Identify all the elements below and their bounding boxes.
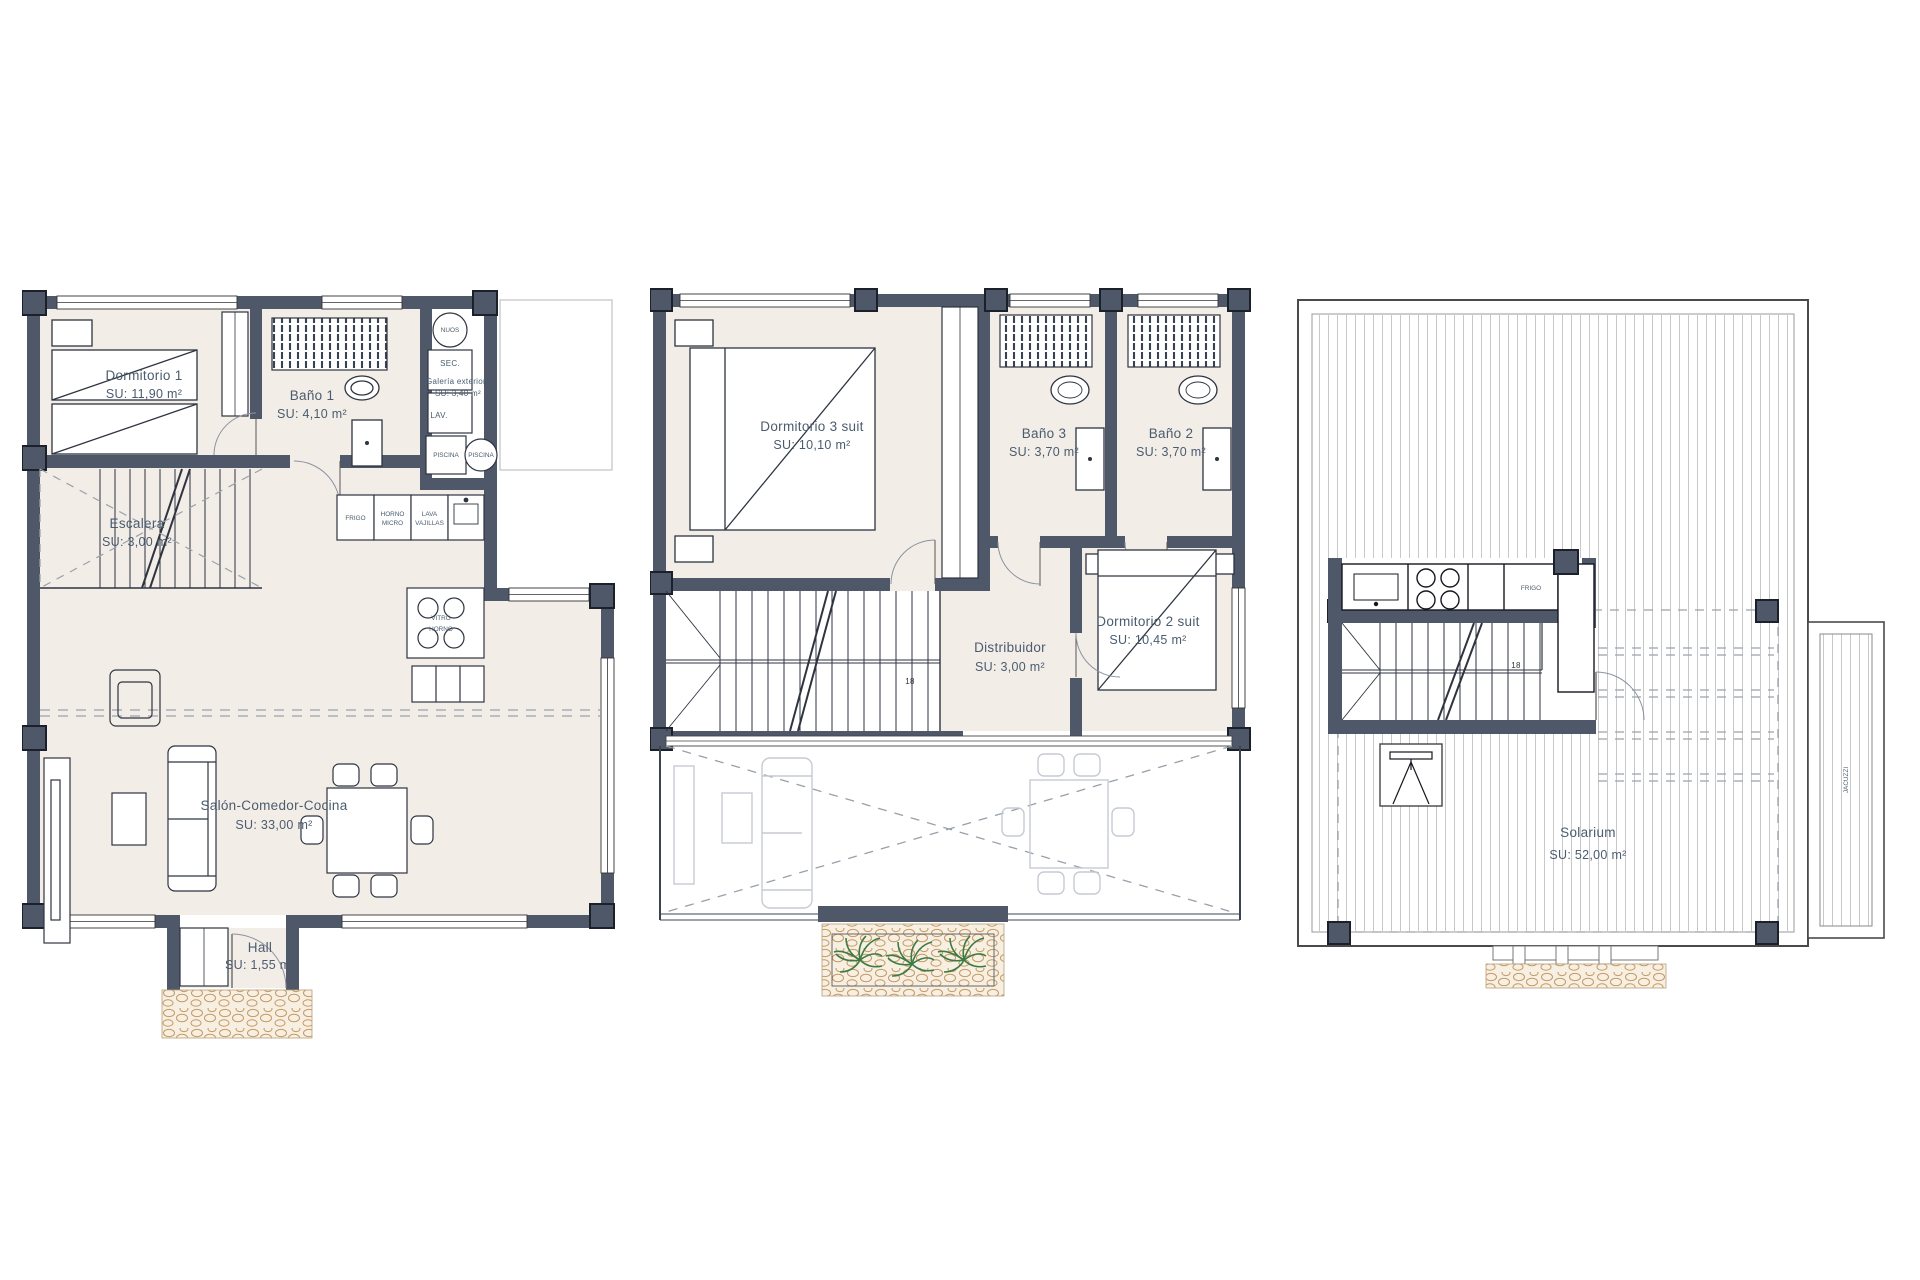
galeria-area: SU: 3,40 m² bbox=[435, 389, 481, 398]
bano1-area: SU: 4,10 m² bbox=[277, 407, 347, 421]
distribuidor-name: Distribuidor bbox=[974, 640, 1046, 655]
floorplan-sheet: NUOS SEC. LAV. PISCINA PISCINA Galería e… bbox=[0, 0, 1920, 1280]
vajillas-label: VAJILLAS bbox=[415, 520, 444, 527]
vitro-horno-label: HORNO bbox=[429, 626, 453, 633]
bano3-area: SU: 3,70 m² bbox=[1009, 445, 1079, 459]
hall-closet bbox=[180, 928, 228, 986]
terrace-void-dashed bbox=[666, 746, 1232, 912]
dormitorio1-name: Dormitorio 1 bbox=[105, 368, 182, 383]
bano2-area: SU: 3,70 m² bbox=[1136, 445, 1206, 459]
garden-bed bbox=[822, 924, 1004, 996]
sec-label: SEC. bbox=[440, 359, 460, 368]
porch-paving bbox=[162, 990, 312, 1038]
coffee-table bbox=[112, 793, 146, 845]
solarium-name: Solarium bbox=[1560, 825, 1616, 840]
lav-label: LAV. bbox=[430, 411, 447, 420]
dormitorio3-name: Dormitorio 3 suit bbox=[760, 419, 863, 434]
bano3-name: Baño 3 bbox=[1022, 426, 1067, 441]
salon-name: Salón-Comedor-Cocina bbox=[200, 798, 347, 813]
sofa bbox=[168, 746, 216, 891]
outdoor-shower bbox=[1380, 744, 1442, 806]
dormitorio2-name: Dormitorio 2 suit bbox=[1096, 614, 1199, 629]
frigo-label: FRIGO bbox=[345, 515, 365, 522]
salon-area: SU: 33,00 m² bbox=[235, 818, 312, 832]
terrace-glazing bbox=[666, 736, 1232, 746]
plan-ground-floor: NUOS SEC. LAV. PISCINA PISCINA Galería e… bbox=[22, 288, 622, 1068]
micro-label: MICRO bbox=[382, 520, 403, 527]
plan-solarium: JACUZZI FRIGO 18 bbox=[1288, 292, 1888, 992]
bath1-towel-rack bbox=[272, 318, 387, 370]
rooftop-cupboard bbox=[1554, 550, 1594, 692]
stair-steps-count: 18 bbox=[905, 677, 915, 686]
bath1-toilet bbox=[345, 376, 379, 400]
plan-first-floor: Dormitorio 3 suit SU: 10,10 m² Baño 3 SU… bbox=[650, 288, 1255, 1018]
hall-name: Hall bbox=[248, 940, 272, 955]
kitchen-island-hob bbox=[407, 588, 484, 658]
bedroom1-wardrobe bbox=[222, 312, 248, 416]
entry-canopy bbox=[1486, 946, 1666, 988]
vitro-label: VITRO bbox=[431, 615, 451, 622]
bath1-shower bbox=[352, 420, 382, 466]
horno-label: HORNO bbox=[381, 511, 405, 518]
exterior-terrace-outline bbox=[500, 300, 612, 470]
kitchen-island-2 bbox=[412, 666, 484, 702]
solarium-area: SU: 52,00 m² bbox=[1549, 848, 1626, 862]
dormitorio1-area: SU: 11,90 m² bbox=[106, 387, 182, 401]
stair-steps-count: 18 bbox=[1511, 661, 1521, 670]
ghost-furniture bbox=[674, 754, 1134, 908]
piscina-rect-label: PISCINA bbox=[433, 452, 459, 459]
dormitorio3-area: SU: 10,10 m² bbox=[773, 438, 850, 452]
galeria-name: Galería exterior bbox=[426, 377, 486, 386]
lava-label: LAVA bbox=[422, 511, 438, 518]
bano1-name: Baño 1 bbox=[290, 388, 335, 403]
nuos-label: NUOS bbox=[441, 327, 459, 334]
distribuidor-area: SU: 3,00 m² bbox=[975, 660, 1045, 674]
tv-sideboard bbox=[44, 758, 70, 943]
piscina-circle-label: PISCINA bbox=[468, 452, 494, 459]
hall-area: SU: 1,55 m² bbox=[225, 958, 295, 972]
escalera-name: Escalera bbox=[110, 516, 165, 531]
bedroom3-wardrobe bbox=[942, 307, 978, 578]
jacuzzi-label: JACUZZI bbox=[1843, 767, 1850, 793]
escalera-area: SU: 3,00 m² bbox=[102, 535, 172, 549]
dormitorio2-area: SU: 10,45 m² bbox=[1109, 633, 1186, 647]
terrace-boundary bbox=[660, 746, 1240, 920]
bano2-name: Baño 2 bbox=[1149, 426, 1194, 441]
solarium-frigo-label: FRIGO bbox=[1521, 585, 1541, 592]
